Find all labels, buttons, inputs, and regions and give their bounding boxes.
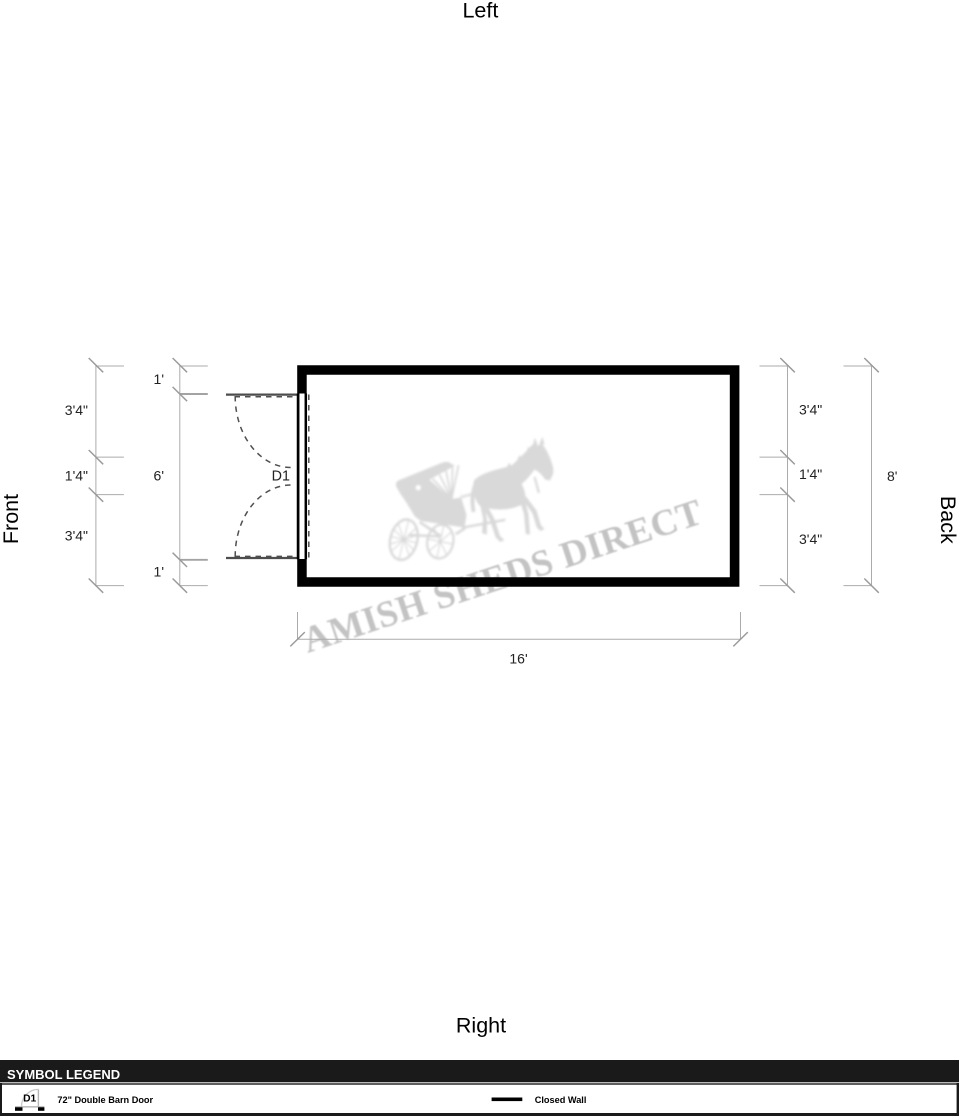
svg-text:Right: Right xyxy=(456,1014,506,1038)
svg-text:Back: Back xyxy=(936,496,959,544)
svg-text:1': 1' xyxy=(154,564,164,580)
svg-text:1': 1' xyxy=(154,371,164,387)
svg-text:3'4": 3'4" xyxy=(65,528,88,544)
svg-text:16': 16' xyxy=(509,651,527,667)
svg-text:Front: Front xyxy=(0,494,23,544)
svg-text:1'4": 1'4" xyxy=(799,466,822,482)
svg-text:8': 8' xyxy=(887,468,897,484)
svg-text:SYMBOL LEGEND: SYMBOL LEGEND xyxy=(7,1067,120,1082)
svg-text:D1: D1 xyxy=(272,469,290,485)
svg-text:3'4": 3'4" xyxy=(799,531,822,547)
svg-text:D1: D1 xyxy=(23,1093,36,1104)
svg-text:72" Double Barn Door: 72" Double Barn Door xyxy=(57,1095,153,1105)
svg-text:3'4": 3'4" xyxy=(65,402,88,418)
svg-text:1'4": 1'4" xyxy=(65,468,88,484)
svg-text:Left: Left xyxy=(462,0,498,23)
svg-text:3'4": 3'4" xyxy=(799,402,822,418)
svg-text:Closed Wall: Closed Wall xyxy=(535,1095,587,1105)
svg-text:6': 6' xyxy=(154,468,164,484)
